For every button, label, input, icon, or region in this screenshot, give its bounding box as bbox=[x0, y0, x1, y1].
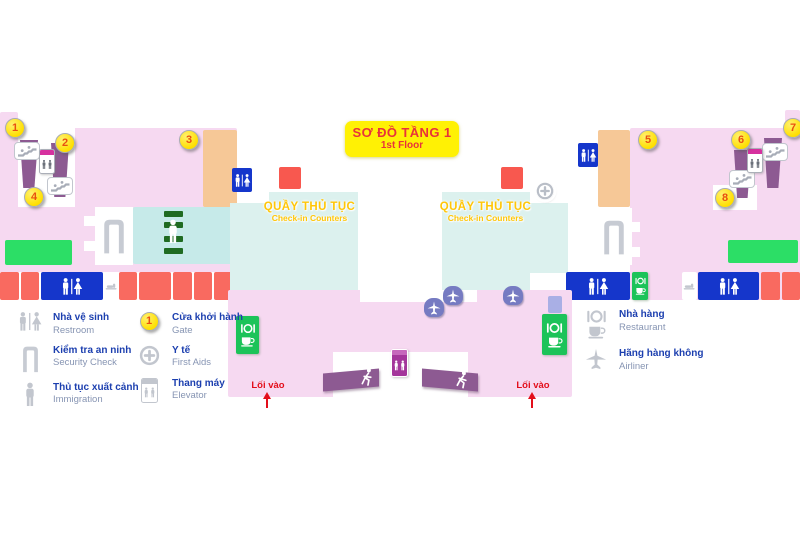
restroom-icon bbox=[580, 149, 597, 162]
shop-block bbox=[21, 272, 39, 300]
bench-icon bbox=[683, 282, 696, 291]
left-checkin-red-block bbox=[279, 167, 301, 189]
gate-plane-icon bbox=[443, 286, 463, 305]
elevator-icon bbox=[39, 149, 55, 174]
right-security-tab bbox=[628, 222, 640, 232]
left-security-tab bbox=[84, 241, 96, 251]
legend-label-vi: Nhà hàng bbox=[619, 309, 665, 322]
legend-label-vi: Hãng hàng không bbox=[619, 348, 703, 361]
shop-block bbox=[173, 272, 192, 300]
shop-block bbox=[119, 272, 137, 300]
legend-label-vi: Y tế bbox=[172, 345, 211, 358]
elevator-icon bbox=[391, 349, 408, 377]
shop-block bbox=[761, 272, 780, 300]
security-scanner-icon bbox=[601, 213, 627, 261]
entrance-arrow-left bbox=[262, 392, 272, 408]
checkin-label-en: Check-in Counters bbox=[428, 213, 543, 223]
restroom-block bbox=[41, 272, 103, 300]
restroom-block-small bbox=[578, 143, 598, 167]
shop-block bbox=[139, 272, 171, 300]
restaurant-icon bbox=[585, 309, 608, 324]
elevator-icon bbox=[747, 148, 763, 173]
legend-label-en: Security Check bbox=[53, 357, 131, 368]
legend-label-vi: Thang máy bbox=[172, 378, 225, 391]
right-checkin-label: QUẦY THỦ TỤC Check-in Counters bbox=[428, 201, 543, 223]
legend-label-en: Restroom bbox=[53, 325, 109, 336]
legend-label-en: Immigration bbox=[53, 394, 139, 405]
walker-icon bbox=[360, 367, 375, 387]
left-checkin-label: QUẦY THỦ TỤC Check-in Counters bbox=[252, 201, 367, 223]
legend-label-vi: Thủ tục xuất cảnh bbox=[53, 382, 139, 395]
restroom-block bbox=[566, 272, 630, 300]
seat-block bbox=[682, 272, 697, 300]
restaurant-block bbox=[542, 314, 567, 355]
escalator-icon bbox=[14, 142, 40, 160]
legend-item-gate: 1 Cửa khởi hành Gate bbox=[133, 312, 243, 336]
security-scanner-icon bbox=[20, 345, 41, 373]
entrance-arrow-right bbox=[527, 392, 537, 408]
legend-item-elevator: Thang máy Elevator bbox=[133, 378, 243, 403]
left-green-zone bbox=[5, 240, 72, 265]
immigration-booth-marker bbox=[164, 248, 183, 254]
map-title-vi: SƠ ĐỒ TẦNG 1 bbox=[345, 125, 459, 140]
legend-item-restaurant: Nhà hàng Restaurant bbox=[580, 309, 703, 339]
bench-icon bbox=[105, 282, 118, 291]
restroom-icon bbox=[717, 278, 741, 295]
elevator-icon-header bbox=[392, 350, 407, 355]
elevator-icon-header bbox=[748, 149, 762, 154]
restaurant-icon bbox=[634, 277, 647, 285]
left-facility-row bbox=[0, 272, 233, 300]
gate-circle-4: 4 bbox=[24, 187, 44, 207]
legend-item-immigration: Thủ tục xuất cảnh Immigration bbox=[14, 382, 139, 407]
gate-plane-icon bbox=[503, 286, 523, 305]
legend-column-1: Nhà vệ sinh Restroom Kiểm tra an ninh Se… bbox=[14, 312, 139, 407]
gate-circle-7: 7 bbox=[783, 118, 800, 138]
legend-item-airliner: Hãng hàng không Airliner bbox=[580, 348, 703, 372]
map-title-en: 1st Floor bbox=[345, 140, 459, 151]
immigration-booth-marker bbox=[164, 211, 183, 217]
escalator-icon bbox=[762, 143, 788, 161]
first-aid-icon bbox=[139, 345, 160, 366]
airplane-icon bbox=[585, 348, 607, 370]
right-security-tab bbox=[628, 247, 640, 257]
pier-blue-block bbox=[548, 296, 562, 313]
legend-item-first-aid: Y tế First Aids bbox=[133, 345, 243, 369]
elevator-icon bbox=[141, 378, 158, 403]
checkin-label-vi: QUẦY THỦ TỤC bbox=[252, 201, 367, 213]
map-title: SƠ ĐỒ TẦNG 1 1st Floor bbox=[345, 121, 459, 157]
checkin-label-en: Check-in Counters bbox=[252, 213, 367, 223]
legend-label-en: Elevator bbox=[172, 390, 225, 401]
immigration-officer-icon bbox=[167, 219, 179, 244]
restaurant-block-small bbox=[632, 272, 648, 300]
right-green-zone bbox=[728, 240, 798, 263]
restroom-icon bbox=[17, 312, 43, 331]
shop-block bbox=[782, 272, 800, 300]
restaurant-icon bbox=[545, 322, 564, 334]
gate-circle-5: 5 bbox=[638, 130, 658, 150]
legend-label-vi: Kiểm tra an ninh bbox=[53, 345, 131, 358]
elevator-icon-header bbox=[40, 150, 54, 155]
left-immigration-zone bbox=[133, 207, 233, 264]
restroom-block bbox=[698, 272, 759, 300]
security-scanner-icon bbox=[101, 212, 127, 260]
entrance-label-left: Lối vào bbox=[248, 380, 288, 391]
seat-block bbox=[104, 272, 118, 300]
first-aid-icon bbox=[536, 182, 554, 200]
gate-circle-1: 1 bbox=[5, 118, 25, 138]
gate-circle-8: 8 bbox=[715, 188, 735, 208]
walker-icon bbox=[455, 369, 470, 389]
legend-label-en: First Aids bbox=[172, 357, 211, 368]
legend-column-2: 1 Cửa khởi hành Gate Y tế First Aids Tha… bbox=[133, 312, 243, 403]
gate-plane-icon bbox=[424, 298, 444, 317]
legend-column-3: Nhà hàng Restaurant Hãng hàng không Airl… bbox=[580, 309, 703, 372]
gate-circle-2: 2 bbox=[55, 133, 75, 153]
restroom-icon bbox=[60, 278, 84, 295]
legend-label-vi: Nhà vệ sinh bbox=[53, 312, 109, 325]
coffee-cup-icon bbox=[547, 336, 563, 348]
immigration-person-icon bbox=[24, 382, 36, 407]
escalator-icon bbox=[47, 177, 73, 195]
right-facility-row bbox=[566, 272, 800, 300]
legend-item-security: Kiểm tra an ninh Security Check bbox=[14, 345, 139, 373]
floor-plan-map: 1 2 3 4 QUẦY THỦ TỤC Check-in Counters Q… bbox=[0, 0, 800, 533]
legend-label-vi: Cửa khởi hành bbox=[172, 312, 243, 325]
gate-circle-6: 6 bbox=[731, 130, 751, 150]
left-security-tab bbox=[84, 216, 96, 226]
restroom-icon bbox=[234, 174, 251, 187]
legend-label-en: Restaurant bbox=[619, 322, 665, 333]
gate-circle-3: 3 bbox=[179, 130, 199, 150]
right-checkin-red-block bbox=[501, 167, 523, 189]
legend-label-en: Airliner bbox=[619, 361, 703, 372]
shop-block bbox=[194, 272, 212, 300]
checkin-label-vi: QUẦY THỦ TỤC bbox=[428, 201, 543, 213]
legend-label-en: Gate bbox=[172, 325, 243, 336]
legend-item-restroom: Nhà vệ sinh Restroom bbox=[14, 312, 139, 336]
right-orange-zone bbox=[598, 130, 630, 207]
coffee-cup-icon bbox=[587, 325, 606, 339]
restroom-icon bbox=[586, 278, 610, 295]
restroom-block-small bbox=[232, 168, 252, 192]
entrance-label-right: Lối vào bbox=[513, 380, 553, 391]
gate-number-icon: 1 bbox=[140, 312, 159, 331]
shop-block bbox=[0, 272, 19, 300]
coffee-cup-icon bbox=[635, 287, 646, 295]
